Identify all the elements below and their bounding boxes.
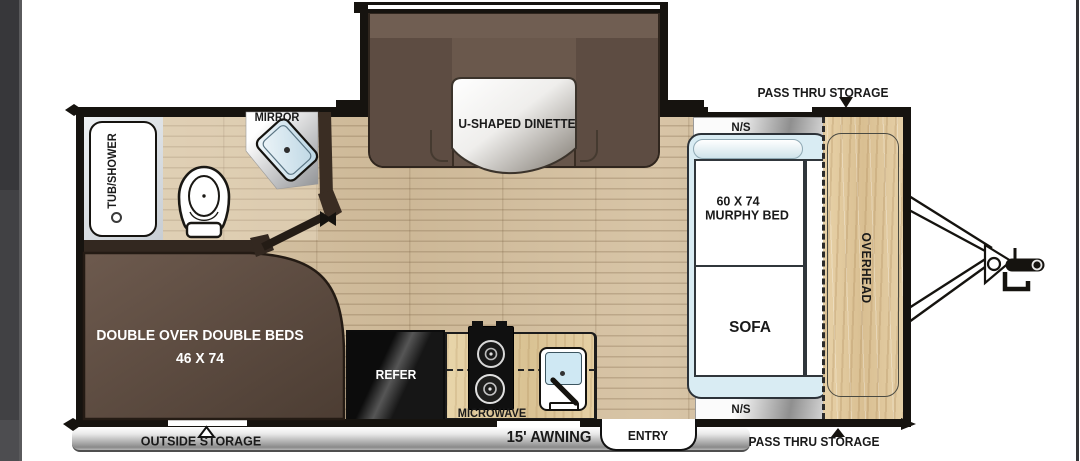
- ns-top-label: N/S: [731, 120, 750, 134]
- dinette-back-cushion: [370, 14, 658, 40]
- microwave-label: MICROWAVE: [458, 408, 526, 420]
- awning-label: 15' AWNING: [507, 429, 592, 447]
- refer-label: REFER: [376, 368, 417, 382]
- dinette-sofa: [368, 12, 660, 168]
- overhead-label: OVERHEAD: [859, 232, 873, 303]
- wall-right: [903, 107, 911, 427]
- murphy-bed-headboard: [693, 139, 803, 159]
- right-page-edge: [1076, 0, 1079, 461]
- tub-shower: [89, 121, 157, 237]
- pass-thru-top-label: PASS THRU STORAGE: [758, 86, 889, 100]
- outside-storage-hatch: [168, 420, 247, 426]
- cooktop: [468, 326, 514, 410]
- left-panel-edge: [19, 0, 22, 461]
- rear-bed-label-2: 46 X 74: [176, 351, 224, 367]
- hitch-icon: [909, 196, 1042, 322]
- sink-faucet-base: [549, 402, 579, 411]
- left-dark-panel-bottom: [0, 420, 19, 461]
- bathroom-floor: [163, 117, 318, 240]
- slideout-flange-right: [666, 100, 704, 117]
- dinette-arm-seam: [580, 130, 598, 162]
- murphy-size-label: 60 X 74: [716, 194, 759, 209]
- entry-label: ENTRY: [628, 429, 668, 443]
- tub-shower-label: TUB/SHOWER: [107, 133, 119, 208]
- slideout-flange-left: [336, 100, 362, 117]
- murphy-bed-mattress: [694, 159, 805, 377]
- ns-bottom-label: N/S: [731, 402, 750, 416]
- kitchen-sink-basin: [545, 352, 582, 385]
- murphy-bed-divider: [694, 265, 805, 267]
- nightstand-bottom: [695, 396, 827, 420]
- pass-thru-hatch-top: [708, 104, 812, 112]
- dinette-label: U-SHAPED DINETTE: [458, 117, 575, 131]
- rear-bed-label-1: DOUBLE OVER DOUBLE BEDS: [96, 328, 303, 344]
- left-dark-panel-mid: [0, 190, 19, 420]
- pass-thru-bottom-label: PASS THRU STORAGE: [749, 435, 880, 449]
- left-dark-panel: [0, 0, 19, 190]
- dinette-middle-cushion: [452, 38, 576, 84]
- murphy-name-label: MURPHY BED: [705, 208, 789, 223]
- cooktop-tab-icon: [496, 321, 507, 327]
- outside-storage-label: OUTSIDE STORAGE: [141, 434, 261, 449]
- mirror-label: MIRROR: [255, 112, 300, 124]
- wall-left: [76, 107, 84, 427]
- bathroom-divider-wall: [80, 240, 258, 253]
- cooktop-tab-icon: [472, 321, 483, 327]
- dinette-arm-seam: [430, 130, 448, 162]
- slideout-edge-stripe: [368, 5, 660, 9]
- overhead-dashed-line: [822, 117, 825, 419]
- sink-drain-icon: [560, 371, 565, 376]
- tub-drain-icon: [111, 212, 122, 223]
- sofa-label: SOFA: [729, 319, 771, 337]
- rv-floorplan: PASS THRU STORAGE N/S 60 X 74 MURPHY BED…: [0, 0, 1080, 461]
